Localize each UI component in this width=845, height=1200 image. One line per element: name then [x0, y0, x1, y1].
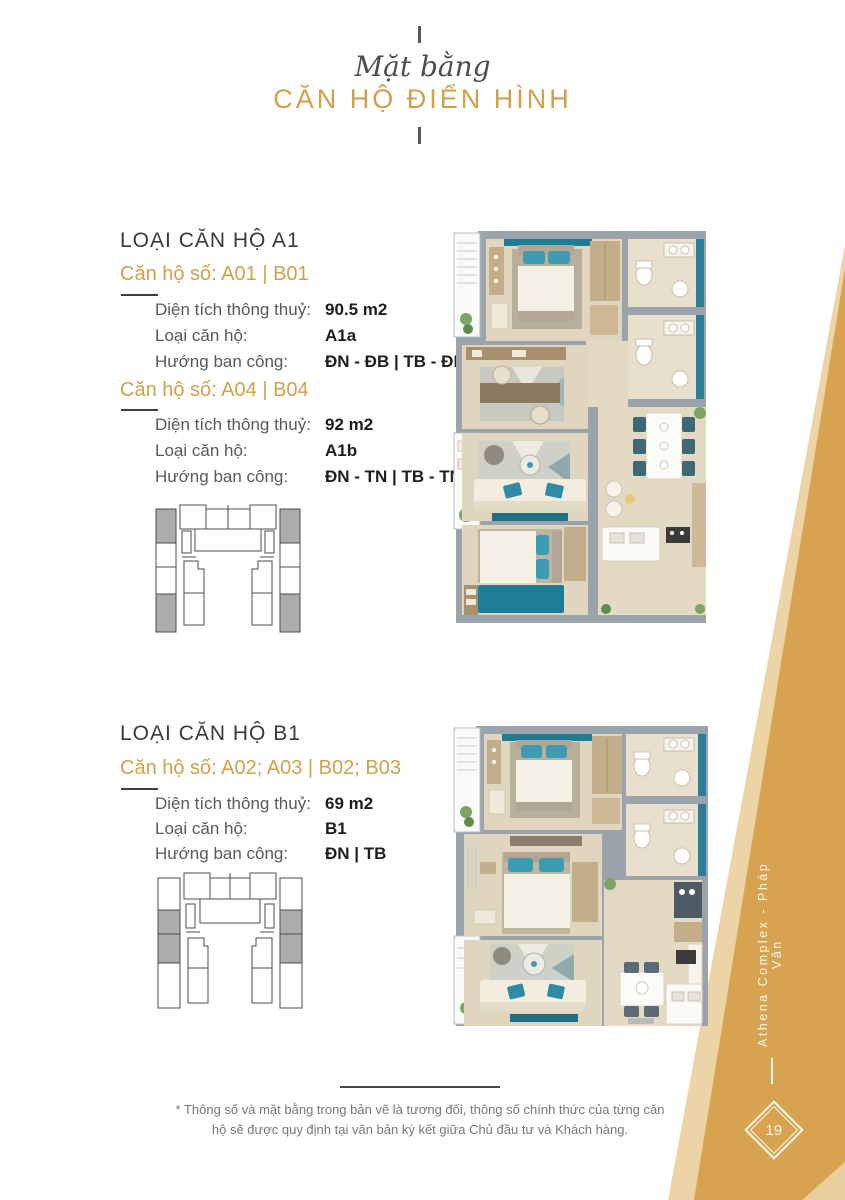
detail-value: A1a [325, 326, 356, 346]
detail-value: B1 [325, 819, 347, 839]
section-b1-heading: LOẠI CĂN HỘ B1 [120, 722, 301, 746]
floorplan-b1-render [452, 722, 714, 1034]
detail-label: Diện tích thông thuỷ: [155, 300, 325, 320]
side-band-dash [771, 1058, 773, 1084]
keyplan-b1-diagram [150, 868, 310, 1023]
unit-a01-b01-subheading: Căn hộ số: A01 | B01 [120, 263, 309, 286]
detail-label: Loại căn hộ: [155, 326, 325, 346]
detail-value: ĐN - ĐB | TB - ĐB [325, 352, 466, 372]
detail-label: Loại căn hộ: [155, 819, 325, 839]
detail-value: ĐN - TN | TB - TN [325, 467, 462, 487]
keyplan-a1-diagram [148, 497, 308, 642]
unit-a04-b04-underline [121, 409, 158, 411]
detail-label: Hướng ban công: [155, 844, 325, 864]
footer-disclaimer: * Thông số và mặt bằng trong bản vẽ là t… [175, 1100, 665, 1139]
page-number: 19 [766, 1122, 783, 1139]
unit-b1-subheading: Căn hộ số: A02; A03 | B02; B03 [120, 757, 401, 780]
detail-label: Hướng ban công: [155, 352, 325, 372]
page-title-main: CĂN HỘ ĐIỂN HÌNH [0, 84, 845, 115]
side-band-project-name: Athena Complex - Pháp Vân [756, 848, 786, 1060]
gold-side-band [0, 0, 845, 1200]
header-tick-top [418, 26, 421, 43]
detail-label: Hướng ban công: [155, 467, 325, 487]
detail-value: ĐN | TB [325, 844, 386, 864]
detail-value: 92 m2 [325, 415, 373, 435]
header-tick-bottom [418, 127, 421, 144]
unit-a01-b01-underline [121, 294, 158, 296]
detail-value: A1b [325, 441, 357, 461]
detail-label: Loại căn hộ: [155, 441, 325, 461]
page-title-script: Mặt bằng [0, 50, 845, 83]
page-number-diamond-inner: 19 [750, 1106, 798, 1154]
detail-label: Diện tích thông thuỷ: [155, 415, 325, 435]
section-a1-heading: LOẠI CĂN HỘ A1 [120, 229, 300, 253]
detail-value: 69 m2 [325, 794, 373, 814]
footer-divider [340, 1086, 500, 1088]
unit-b1-underline [121, 788, 158, 790]
floorplan-a1-render [452, 227, 710, 639]
page-number-diamond: 19 [744, 1100, 803, 1159]
detail-value: 90.5 m2 [325, 300, 387, 320]
brochure-page: Athena Complex - Pháp Vân 19 Mặt bằng CĂ… [0, 0, 845, 1200]
unit-a04-b04-subheading: Căn hộ số: A04 | B04 [120, 379, 309, 402]
detail-label: Diện tích thông thuỷ: [155, 794, 325, 814]
